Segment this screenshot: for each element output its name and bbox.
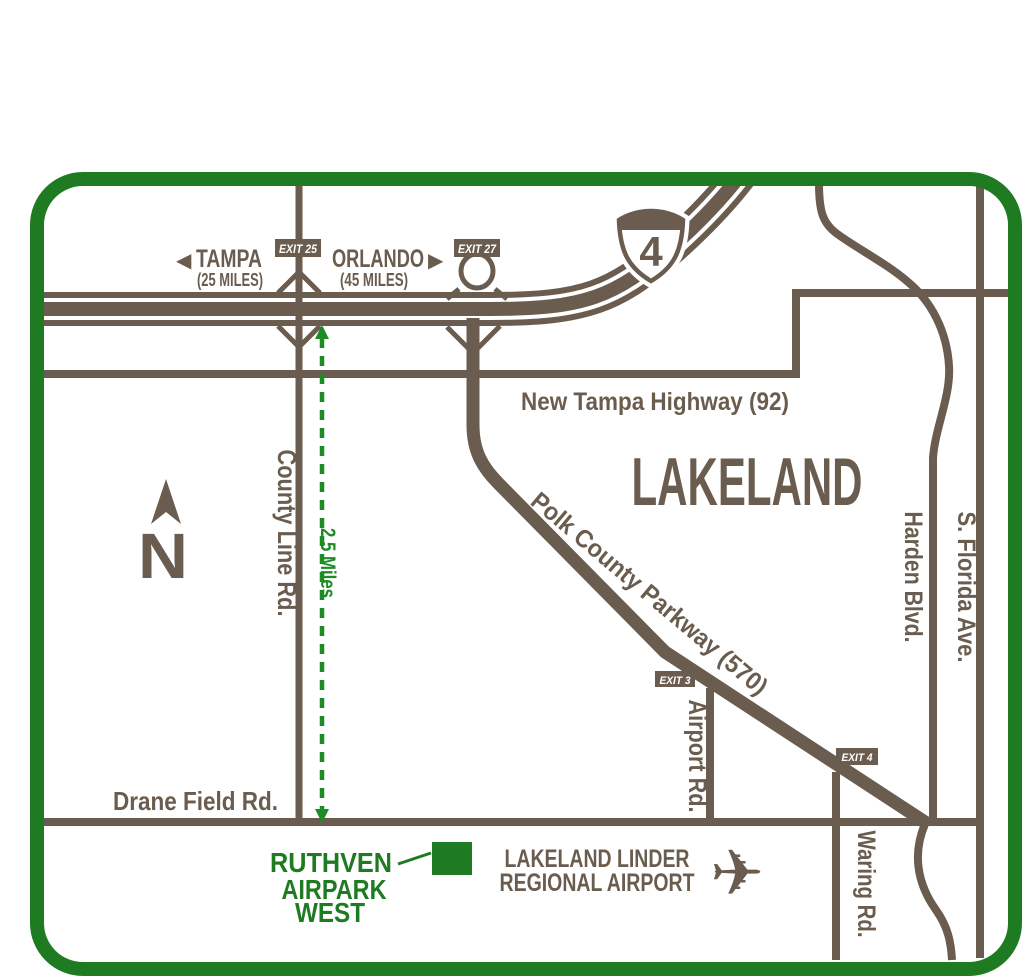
- waring-rd-label: Waring Rd.: [852, 831, 880, 938]
- exit-4-badge: EXIT 4: [836, 748, 878, 765]
- orlando-label: ORLANDO: [332, 245, 424, 273]
- lakeland-directions-map: 4 2.5 Miles ◀ TAMPA (25 MILES) ORLANDO ▶…: [0, 0, 1024, 977]
- exit-27-badge: EXIT 27: [454, 239, 500, 257]
- s-florida-ave-label: S. Florida Ave.: [952, 512, 980, 663]
- exit-3-badge-label: EXIT 3: [660, 675, 691, 687]
- new-tampa-highway-label: New Tampa Highway (92): [521, 388, 789, 416]
- distance-measure: 2.5 Miles: [315, 325, 339, 823]
- exit-4-badge-label: EXIT 4: [842, 752, 873, 764]
- orlando-distance: (45 MILES): [340, 270, 408, 290]
- map-content: 4 2.5 Miles ◀ TAMPA (25 MILES) ORLANDO ▶…: [30, 162, 1016, 960]
- ruthven-pointer-line: [398, 853, 431, 864]
- distance-label: 2.5 Miles: [316, 528, 339, 598]
- compass-letter: N: [138, 520, 188, 592]
- north-arrow-icon: [151, 479, 181, 524]
- exit-3-badge: EXIT 3: [655, 671, 695, 687]
- exit27-loop-icon: [461, 254, 493, 288]
- ruthven-site-marker: [432, 842, 472, 875]
- compass: N: [138, 479, 188, 592]
- map-page: 4 2.5 Miles ◀ TAMPA (25 MILES) ORLANDO ▶…: [0, 0, 1024, 977]
- airplane-icon: ✈: [710, 837, 764, 909]
- tampa-distance: (25 MILES): [197, 270, 263, 290]
- harden-blvd-label: Harden Blvd.: [899, 512, 927, 643]
- exit-25-badge-label: EXIT 25: [279, 242, 317, 256]
- shield-number: 4: [639, 228, 663, 275]
- drane-field-label: Drane Field Rd.: [113, 786, 278, 816]
- county-line-label: County Line Rd.: [272, 450, 302, 617]
- tampa-label: TAMPA: [196, 245, 262, 273]
- airport-rd-label: Airport Rd.: [683, 700, 711, 813]
- ruthven-label-line3: WEST: [295, 897, 365, 928]
- parkway-south-curve-road: [918, 824, 952, 960]
- east-arrow-icon: ▶: [428, 250, 444, 272]
- airport-label-line2: REGIONAL AIRPORT: [500, 869, 695, 897]
- west-arrow-icon: ◀: [176, 250, 192, 272]
- ruthven-airpark-poi: RUTHVEN AIRPARK WEST: [270, 842, 472, 928]
- exit-27-badge-label: EXIT 27: [458, 242, 497, 256]
- city-label: LAKELAND: [632, 444, 863, 520]
- lakeland-linder-poi: LAKELAND LINDER REGIONAL AIRPORT ✈: [500, 837, 764, 909]
- exit-25-badge: EXIT 25: [275, 239, 321, 257]
